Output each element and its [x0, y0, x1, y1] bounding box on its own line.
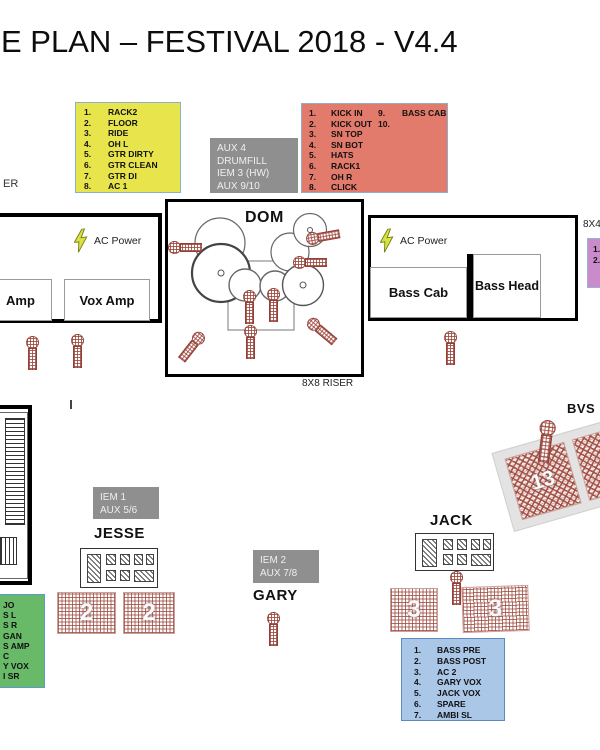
- fader-module: [0, 537, 17, 565]
- list-number: 7.: [302, 172, 331, 183]
- list-number: 4.: [402, 677, 437, 688]
- list-label: S AMP: [3, 641, 30, 651]
- wedge-number: 2: [80, 599, 93, 627]
- riser-label-fragment: ER: [3, 178, 18, 190]
- list-row: 3.RIDE: [76, 128, 180, 139]
- iem-line: IEM 1: [100, 492, 159, 505]
- vox-amp-box: Vox Amp: [64, 279, 150, 321]
- list-row: 10.: [378, 119, 446, 130]
- microphone-icon: [449, 571, 463, 607]
- list-label: S R: [3, 620, 17, 630]
- list-row: C: [3, 651, 44, 661]
- list-number: 5.: [302, 150, 331, 161]
- list-label: AMBI SL: [437, 710, 472, 721]
- pedal: [134, 554, 143, 565]
- list-number: 2.: [402, 656, 437, 667]
- list-row: 9.BASS CAB: [378, 108, 446, 119]
- list-row: 5.GTR DIRTY: [76, 149, 180, 160]
- list-label: OH R: [331, 172, 352, 183]
- wedge-number: 3: [407, 596, 420, 624]
- aux-line: AUX 9/10: [217, 181, 298, 194]
- list-row: 1.BASS PRE: [402, 645, 504, 656]
- list-number: 2.: [302, 119, 331, 130]
- iem2-box: IEM 2 AUX 7/8: [253, 550, 319, 583]
- pedal: [443, 539, 453, 550]
- list-row: 3.SN TOP: [302, 129, 447, 140]
- list-row: I SR: [3, 671, 44, 681]
- monitor-wedge: 2: [123, 592, 175, 634]
- keyboard-top-view: [5, 418, 25, 525]
- singer-name-bvs: BVS: [567, 401, 595, 416]
- list-row: 8.CLICK: [302, 182, 447, 193]
- pedal: [422, 539, 437, 567]
- wedge-number: 2: [142, 599, 155, 627]
- list-label: SN BOT: [331, 140, 363, 151]
- pedal: [457, 554, 467, 565]
- pedal: [120, 570, 130, 581]
- list-number: 5.: [402, 688, 437, 699]
- list-row: 6.SPARE: [402, 699, 504, 710]
- stage-mark: [70, 400, 72, 409]
- monitor-wedge: 3: [461, 585, 530, 633]
- list-row: 7.AMBI SL: [402, 710, 504, 721]
- microphone-icon: [443, 331, 457, 367]
- microphone-icon: [242, 290, 256, 326]
- list-row: 4.GARY VOX: [402, 677, 504, 688]
- musician-name-jesse: JESSE: [94, 525, 145, 542]
- list-number: 1.: [402, 645, 437, 656]
- list-label: CLICK: [331, 182, 357, 193]
- list-label: BASS POST: [437, 656, 486, 667]
- pedal: [120, 554, 130, 565]
- microphone-icon: [168, 241, 204, 255]
- bass-cab-box: Bass Cab: [370, 267, 467, 318]
- list-label: SPARE: [437, 699, 466, 710]
- patch-list-guitar: 1.RACK2 2.FLOOR 3.RIDE 4.OH L 5.GTR DIRT…: [75, 102, 181, 193]
- patch-list-purple: 1. 2.: [587, 238, 600, 288]
- pedal: [457, 539, 467, 550]
- patch-list-keys: JO S L S R GAN S AMP C Y VOX I SR: [0, 594, 45, 688]
- pedalboard: [80, 548, 158, 588]
- list-label: GARY VOX: [437, 677, 481, 688]
- pedal: [106, 570, 116, 581]
- patch-list-drums: 1.KICK IN 2.KICK OUT 3.SN TOP 4.SN BOT 5…: [301, 103, 448, 193]
- pedal: [134, 570, 154, 582]
- list-label: S L: [3, 610, 16, 620]
- list-label: Y VOX: [3, 661, 29, 671]
- guitar-amp-box: Amp: [0, 279, 52, 321]
- list-row: 4.OH L: [76, 139, 180, 150]
- lightning-bolt-icon: [378, 228, 396, 253]
- pedalboard: [415, 533, 494, 571]
- musician-name-gary: GARY: [253, 587, 298, 604]
- list-label: GAN: [3, 631, 22, 641]
- list-label: AC 1: [108, 181, 127, 192]
- list-label: KICK OUT: [331, 119, 372, 130]
- list-row: 6.GTR CLEAN: [76, 160, 180, 171]
- list-row: 3.AC 2: [402, 667, 504, 678]
- list-label: SN TOP: [331, 129, 363, 140]
- list-label: JO: [3, 600, 14, 610]
- list-label: GTR DI: [108, 171, 137, 182]
- list-row: 1.: [593, 244, 600, 255]
- microphone-icon: [25, 336, 39, 372]
- list-label: GTR CLEAN: [108, 160, 158, 171]
- list-number: 6.: [302, 161, 331, 172]
- list-row: 6.RACK1: [302, 161, 447, 172]
- wedge-number: 3: [488, 595, 502, 623]
- list-row: 4.SN BOT: [302, 140, 447, 151]
- list-row: S L: [3, 610, 44, 620]
- pedal: [146, 554, 154, 565]
- list-label: RACK1: [331, 161, 360, 172]
- aux-line: AUX 4: [217, 143, 298, 156]
- list-number: 7.: [76, 171, 108, 182]
- list-row: 8.AC 1: [76, 181, 180, 192]
- list-label: HATS: [331, 150, 354, 161]
- bass-riser: AC Power Bass Cab Bass Head: [368, 215, 578, 321]
- list-number: 7.: [402, 710, 437, 721]
- list-number: 1.: [76, 107, 108, 118]
- list-number: 4.: [76, 139, 108, 150]
- list-label: RACK2: [108, 107, 137, 118]
- list-row: 7.OH R: [302, 172, 447, 183]
- lightning-bolt-icon: [72, 228, 90, 253]
- list-row: 2.: [593, 255, 600, 266]
- list-row: 1.RACK2: [76, 107, 180, 118]
- list-row: GAN: [3, 631, 44, 641]
- monitor-wedge: 2: [57, 592, 116, 634]
- list-label: JACK VOX: [437, 688, 480, 699]
- list-number: 4.: [302, 140, 331, 151]
- pedal: [483, 539, 491, 550]
- list-number: 9.: [378, 108, 402, 119]
- drum-riser: DOM: [165, 199, 364, 377]
- list-row: 5.JACK VOX: [402, 688, 504, 699]
- list-label: KICK IN: [331, 108, 363, 119]
- list-label: FLOOR: [108, 118, 138, 129]
- aux-line: IEM 3 (HW): [217, 168, 298, 181]
- list-row: S AMP: [3, 641, 44, 651]
- patch-list-vocals: 1.BASS PRE 2.BASS POST 3.AC 2 4.GARY VOX…: [401, 638, 505, 721]
- left-amp-riser: AC Power Amp Vox Amp: [0, 213, 162, 323]
- microphone-icon: [266, 288, 280, 324]
- list-label: BASS CAB: [402, 108, 446, 119]
- monitor-wedge: 3: [390, 588, 438, 632]
- microphone-icon: [70, 334, 84, 370]
- stage-plan-canvas: E PLAN – FESTIVAL 2018 - V4.4 1.RACK2 2.…: [0, 0, 600, 750]
- list-row: JO: [3, 600, 44, 610]
- list-number: 8.: [76, 181, 108, 192]
- drum-riser-label: 8X8 RISER: [302, 378, 353, 389]
- list-number: 5.: [76, 149, 108, 160]
- list-label: OH L: [108, 139, 128, 150]
- list-label: GTR DIRTY: [108, 149, 154, 160]
- list-number: 10.: [378, 119, 402, 130]
- iem1-box: IEM 1 AUX 5/6: [93, 487, 159, 519]
- ac-power-label: AC Power: [380, 229, 447, 252]
- wedge-number: 13: [529, 466, 558, 496]
- microphone-icon: [293, 256, 329, 270]
- list-row: 2.BASS POST: [402, 656, 504, 667]
- iem-line: AUX 7/8: [260, 568, 319, 581]
- list-row: 2.FLOOR: [76, 118, 180, 129]
- list-label: I SR: [3, 671, 20, 681]
- iem-line: IEM 2: [260, 555, 319, 568]
- list-number: 6.: [76, 160, 108, 171]
- list-number: 3.: [76, 128, 108, 139]
- aux-line: DRUMFILL: [217, 156, 298, 169]
- pedal: [443, 554, 453, 565]
- page-title: E PLAN – FESTIVAL 2018 - V4.4: [1, 24, 458, 60]
- drumfill-aux-box: AUX 4 DRUMFILL IEM 3 (HW) AUX 9/10: [210, 138, 298, 193]
- ac-power-label: AC Power: [74, 229, 141, 252]
- list-number: 8.: [302, 182, 331, 193]
- microphone-icon: [266, 612, 280, 648]
- list-number: 2.: [593, 255, 600, 266]
- pedal: [471, 554, 491, 566]
- list-row: 7.GTR DI: [76, 171, 180, 182]
- list-number: 6.: [402, 699, 437, 710]
- bass-head-box: Bass Head: [473, 254, 541, 318]
- list-row: Y VOX: [3, 661, 44, 671]
- list-number: 1.: [302, 108, 331, 119]
- list-label: RIDE: [108, 128, 128, 139]
- list-number: 1.: [593, 244, 600, 255]
- pedal: [87, 554, 101, 583]
- riser-size-fragment: 8X4: [583, 219, 600, 230]
- list-row: 5.HATS: [302, 150, 447, 161]
- list-label: BASS PRE: [437, 645, 480, 656]
- list-number: 3.: [402, 667, 437, 678]
- list-label: C: [3, 651, 9, 661]
- microphone-icon: [243, 325, 257, 361]
- list-number: 2.: [76, 118, 108, 129]
- musician-name-jack: JACK: [430, 512, 473, 529]
- pedal: [471, 539, 480, 550]
- pedal: [106, 554, 116, 565]
- list-row: S R: [3, 620, 44, 630]
- list-label: AC 2: [437, 667, 456, 678]
- amp-label-fragment: Amp: [6, 293, 35, 308]
- list-number: 3.: [302, 129, 331, 140]
- iem-line: AUX 5/6: [100, 505, 159, 518]
